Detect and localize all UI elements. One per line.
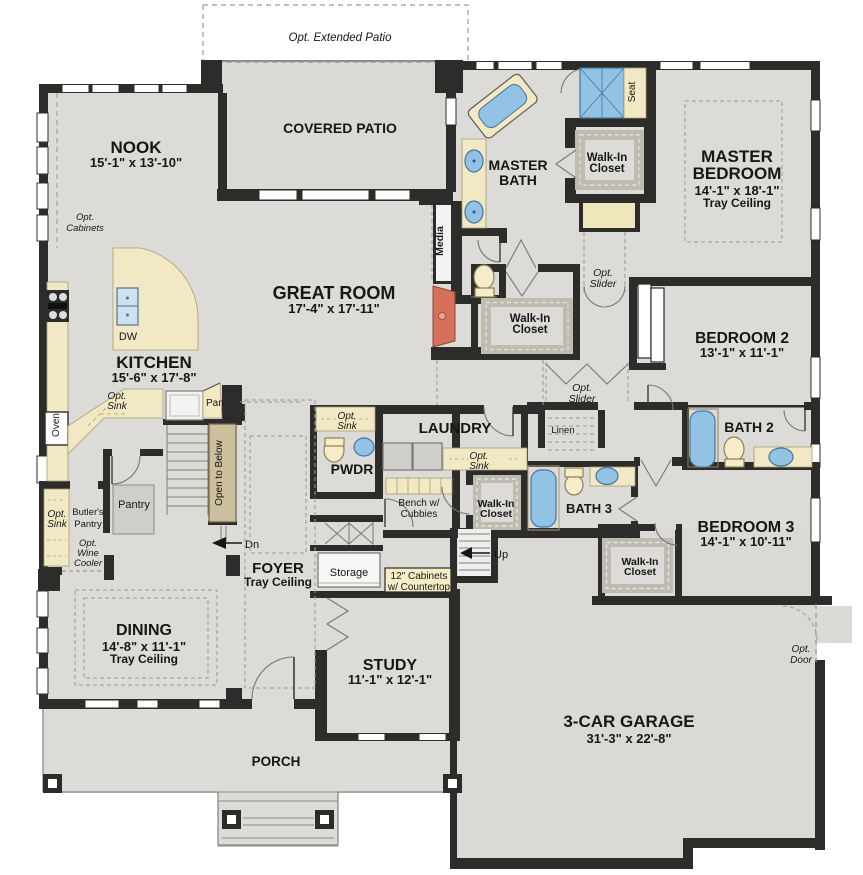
svg-text:Cubbies: Cubbies bbox=[401, 509, 438, 520]
svg-text:15'-6" x 17'-8": 15'-6" x 17'-8" bbox=[111, 370, 196, 385]
svg-text:Opt. Extended Patio: Opt. Extended Patio bbox=[289, 32, 393, 44]
svg-text:Closet: Closet bbox=[624, 566, 657, 578]
svg-text:BATH 3: BATH 3 bbox=[566, 501, 612, 516]
svg-text:Tray Ceiling: Tray Ceiling bbox=[703, 196, 771, 210]
svg-text:Storage: Storage bbox=[330, 567, 369, 579]
svg-text:w/ Countertop: w/ Countertop bbox=[387, 582, 451, 593]
svg-text:Slider: Slider bbox=[569, 393, 596, 405]
svg-text:3-CAR GARAGE: 3-CAR GARAGE bbox=[563, 712, 694, 731]
svg-text:BATH 2: BATH 2 bbox=[724, 419, 774, 435]
svg-text:Bench w/: Bench w/ bbox=[398, 498, 439, 509]
svg-text:15'-1" x 13'-10": 15'-1" x 13'-10" bbox=[90, 155, 182, 170]
svg-text:Closet: Closet bbox=[480, 508, 513, 520]
svg-text:DW: DW bbox=[119, 331, 138, 343]
svg-text:13'-1" x 11'-1": 13'-1" x 11'-1" bbox=[700, 345, 784, 360]
svg-text:Open to Below: Open to Below bbox=[214, 439, 225, 505]
svg-text:Slider: Slider bbox=[590, 278, 617, 290]
svg-text:Sink: Sink bbox=[337, 421, 357, 432]
svg-text:BEDROOM: BEDROOM bbox=[693, 164, 782, 183]
svg-text:MASTER: MASTER bbox=[488, 157, 547, 173]
svg-text:Opt.: Opt. bbox=[792, 644, 811, 655]
svg-text:Closet: Closet bbox=[512, 324, 547, 336]
svg-text:Pantry: Pantry bbox=[118, 499, 150, 511]
svg-text:Media: Media bbox=[434, 226, 446, 256]
svg-text:Up: Up bbox=[494, 549, 508, 561]
svg-text:Dn: Dn bbox=[245, 539, 259, 551]
svg-text:BATH: BATH bbox=[499, 172, 537, 188]
svg-text:LAUNDRY: LAUNDRY bbox=[419, 420, 492, 437]
svg-text:17'-4" x 17'-11": 17'-4" x 17'-11" bbox=[288, 301, 380, 316]
svg-text:31'-3" x 22'-8": 31'-3" x 22'-8" bbox=[586, 731, 671, 746]
svg-text:Pantry: Pantry bbox=[74, 519, 102, 530]
svg-text:Oven: Oven bbox=[51, 413, 62, 437]
svg-text:Cabinets: Cabinets bbox=[66, 223, 104, 234]
svg-text:DINING: DINING bbox=[116, 622, 172, 639]
svg-text:11'-1" x 12'-1": 11'-1" x 12'-1" bbox=[348, 672, 432, 687]
svg-text:PWDR: PWDR bbox=[331, 461, 374, 477]
svg-text:Cooler: Cooler bbox=[74, 558, 103, 569]
svg-text:Tray Ceiling: Tray Ceiling bbox=[244, 575, 312, 589]
svg-text:GREAT ROOM: GREAT ROOM bbox=[273, 283, 396, 303]
svg-text:Closet: Closet bbox=[589, 163, 624, 175]
svg-text:Tray Ceiling: Tray Ceiling bbox=[110, 652, 178, 666]
svg-text:14'-1" x 10'-11": 14'-1" x 10'-11" bbox=[700, 534, 792, 549]
svg-text:Opt.: Opt. bbox=[76, 212, 94, 223]
svg-text:Door: Door bbox=[790, 655, 812, 666]
svg-text:COVERED PATIO: COVERED PATIO bbox=[283, 120, 397, 136]
svg-text:Sink: Sink bbox=[107, 401, 127, 412]
svg-text:Butler's: Butler's bbox=[72, 507, 104, 518]
svg-text:12" Cabinets: 12" Cabinets bbox=[391, 571, 448, 582]
svg-text:PORCH: PORCH bbox=[252, 754, 301, 769]
svg-text:Sink: Sink bbox=[469, 461, 489, 472]
svg-text:Seat: Seat bbox=[627, 81, 638, 102]
svg-text:Linen: Linen bbox=[551, 425, 574, 436]
svg-text:Sink: Sink bbox=[47, 519, 67, 530]
svg-text:Pan: Pan bbox=[206, 398, 224, 409]
